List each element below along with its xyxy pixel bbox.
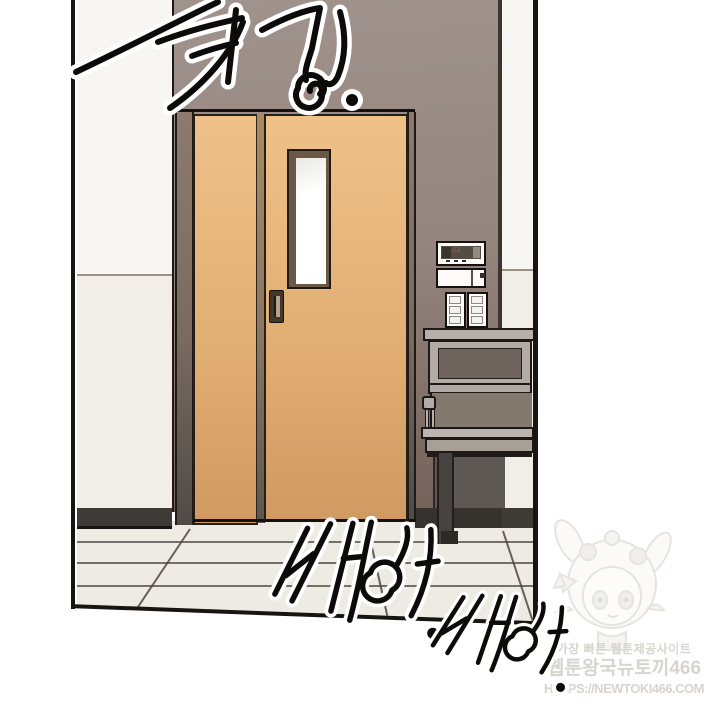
intercom-screen-block	[442, 247, 451, 258]
left-baseboard	[77, 508, 172, 526]
door-frame-right	[407, 112, 416, 522]
watermark-line-2: 웹툰왕국뉴토끼466	[540, 658, 708, 680]
switch-rocker	[449, 316, 461, 324]
intercom-button	[462, 260, 466, 262]
left-wall	[77, 0, 172, 529]
intercom-screen-strip	[473, 247, 480, 258]
switch-rocker	[471, 296, 483, 304]
floor-tile-line-2	[77, 562, 538, 564]
intercom-keypad-box	[436, 268, 486, 288]
intercom-button	[454, 260, 458, 262]
panel-bottom-border	[63, 604, 538, 720]
floor-diagonal-line-2	[366, 525, 389, 619]
left-baseboard-line	[77, 526, 172, 529]
watermark-mascot	[552, 512, 672, 657]
webtoon-panel-page: 22	[0, 0, 720, 720]
left-wall-lower	[77, 276, 172, 508]
intercom-display-value: 22	[452, 248, 460, 255]
watermark: 가장 빠른 웹툰제공사이트 웹툰왕국뉴토끼466 HTTPS://NEWTOKI…	[540, 641, 708, 697]
door-window	[287, 149, 331, 289]
switch-rocker	[449, 306, 461, 314]
switch-rocker	[471, 316, 483, 324]
light-switch-plate-2	[467, 292, 488, 328]
door-bottom-line	[193, 519, 415, 522]
intercom-screen: 22	[441, 246, 481, 259]
floor-tile-line-3	[77, 585, 538, 587]
keypad-divider	[471, 270, 473, 286]
piano-panel-inset	[438, 348, 522, 379]
door-window-frame	[289, 151, 329, 287]
switch-rocker	[449, 296, 461, 304]
door-leaf-left	[193, 114, 258, 525]
piano-keyboard-lid-front	[425, 438, 534, 453]
door-leaf-right	[264, 114, 408, 521]
piano-foot	[441, 531, 458, 544]
piano-mid-panel	[430, 393, 532, 428]
switch-rocker	[471, 306, 483, 314]
keypad-button	[480, 273, 485, 278]
intercom-button	[446, 260, 450, 262]
panel-right-border	[533, 0, 538, 622]
piano-upper-panel	[428, 340, 532, 385]
piano-lid-prop	[422, 396, 436, 410]
door-window-glass	[296, 158, 326, 284]
door-handle	[269, 290, 284, 323]
panel-left-border	[71, 0, 75, 609]
watermark-line-3: HTTPS://NEWTOKI466.COM	[540, 680, 708, 697]
light-switch-plate-1	[445, 292, 466, 328]
upright-piano	[420, 328, 538, 548]
watermark-line-1: 가장 빠른 웹툰제공사이트	[540, 641, 708, 658]
door-top-line	[175, 109, 415, 112]
intercom-panel: 22	[436, 241, 486, 266]
door-frame-left	[175, 112, 194, 525]
door-handle-slot	[274, 296, 280, 317]
outside-left-margin	[0, 0, 71, 720]
